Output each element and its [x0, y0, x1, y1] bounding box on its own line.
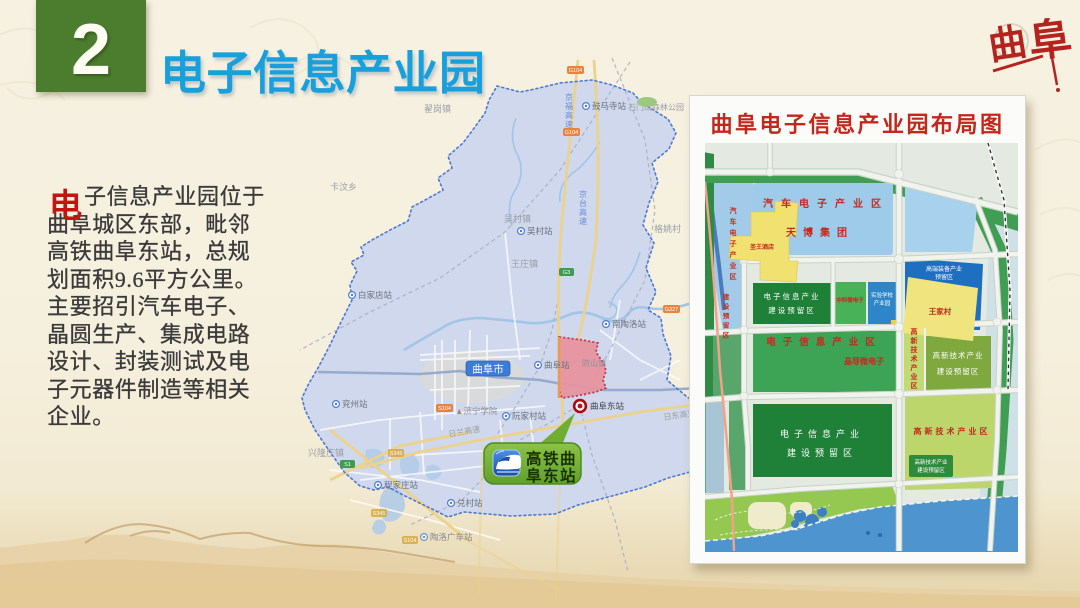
svg-text:预留区: 预留区 — [935, 273, 953, 281]
svg-text:高新技术产业: 高新技术产业 — [933, 350, 984, 360]
svg-text:电子信息产业: 电子信息产业 — [780, 428, 864, 439]
svg-text:高新技术产业区: 高新技术产业区 — [914, 426, 991, 436]
svg-text:建设预留区: 建设预留区 — [722, 292, 730, 339]
svg-text:阮家村站: 阮家村站 — [512, 411, 547, 421]
svg-text:鼓马寺站: 鼓马寺站 — [592, 101, 627, 111]
svg-text:电子信息产业: 电子信息产业 — [764, 291, 821, 301]
svg-text:高新技术产业区: 高新技术产业区 — [910, 327, 919, 390]
svg-text:电子信息产业区: 电子信息产业区 — [766, 336, 882, 348]
svg-text:南陶洛站: 南陶洛站 — [612, 319, 647, 329]
svg-text:王庄镇: 王庄镇 — [511, 258, 538, 269]
svg-text:王家村: 王家村 — [929, 306, 952, 316]
svg-text:汽车电子产业区: 汽车电子产业区 — [763, 197, 889, 210]
svg-text:白家店站: 白家店站 — [358, 290, 393, 300]
svg-text:吴村镇: 吴村镇 — [504, 213, 531, 224]
svg-text:格姚村: 格姚村 — [654, 223, 681, 234]
svg-text:建设预留区: 建设预留区 — [917, 466, 945, 474]
svg-text:兖州站: 兖州站 — [342, 399, 368, 409]
svg-text:卡汶乡: 卡汶乡 — [330, 181, 357, 192]
svg-text:圣王酒店: 圣王酒店 — [750, 243, 774, 251]
svg-text:▲济宁学院: ▲济宁学院 — [455, 406, 498, 416]
svg-text:程家庄站: 程家庄站 — [384, 480, 419, 490]
svg-text:建设预留区: 建设预留区 — [787, 447, 857, 458]
svg-text:吴村站: 吴村站 — [527, 226, 553, 236]
svg-text:S104: S104 — [438, 406, 451, 412]
svg-text:阜东站: 阜东站 — [526, 466, 577, 485]
svg-text:S104: S104 — [404, 538, 417, 544]
svg-text:S1: S1 — [344, 462, 351, 468]
svg-text:汽车电子产业区: 汽车电子产业区 — [730, 206, 737, 281]
svg-text:晶导微电子: 晶导微电子 — [844, 356, 884, 366]
svg-text:兑村站: 兑村站 — [457, 498, 483, 508]
svg-text:曲阜站: 曲阜站 — [544, 360, 570, 370]
svg-text:建设预留区: 建设预留区 — [768, 305, 816, 315]
svg-text:京台高速: 京台高速 — [579, 189, 587, 226]
svg-text:高铁曲: 高铁曲 — [526, 449, 577, 468]
svg-text:G3: G3 — [563, 270, 570, 276]
svg-text:G104: G104 — [565, 130, 578, 136]
svg-text:京福高速: 京福高速 — [565, 92, 573, 129]
svg-text:产业园: 产业园 — [874, 299, 891, 307]
svg-text:建设预留区: 建设预留区 — [937, 366, 980, 376]
svg-text:天博集团: 天博集团 — [786, 226, 854, 239]
svg-text:陶洛广车站: 陶洛广车站 — [430, 532, 473, 542]
svg-text:G104: G104 — [569, 68, 582, 74]
svg-text:实验学校: 实验学校 — [871, 291, 894, 299]
svg-text:S345: S345 — [390, 451, 403, 457]
svg-text:防山镇: 防山镇 — [582, 358, 606, 368]
svg-text:中科微电子: 中科微电子 — [836, 296, 864, 304]
svg-text:G327: G327 — [665, 307, 678, 313]
svg-text:高新技术产业: 高新技术产业 — [914, 458, 948, 466]
svg-text:兴隆庄镇: 兴隆庄镇 — [308, 447, 344, 458]
svg-text:曲阜东站: 曲阜东站 — [590, 401, 625, 411]
svg-text:翟岗镇: 翟岗镇 — [424, 103, 451, 114]
svg-text:曲阜市: 曲阜市 — [472, 363, 504, 376]
svg-text:高端装备产业: 高端装备产业 — [926, 265, 962, 273]
svg-text:S345: S345 — [373, 511, 386, 517]
